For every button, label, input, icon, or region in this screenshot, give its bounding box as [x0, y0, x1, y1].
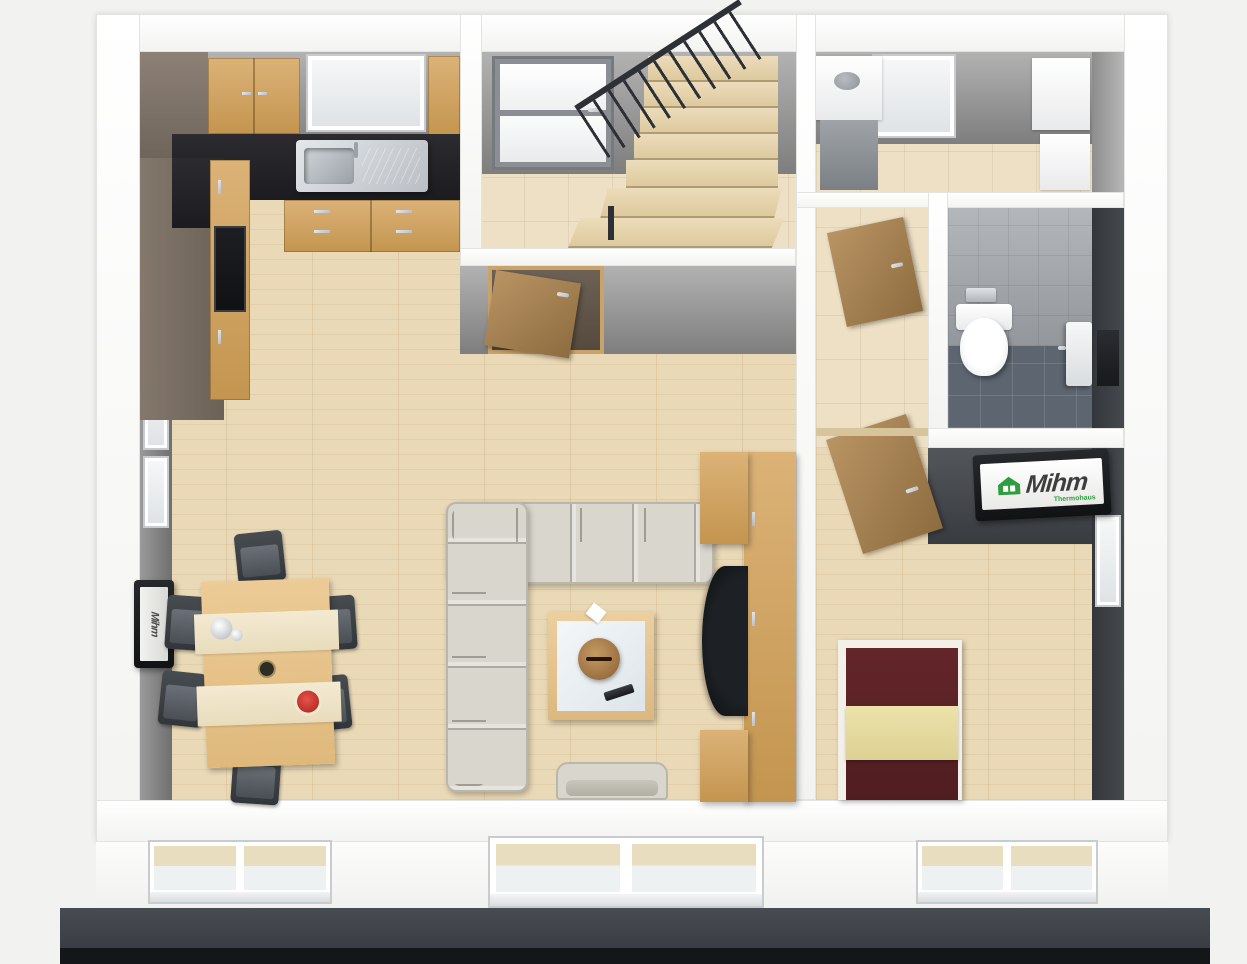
left-window-2	[143, 456, 169, 528]
tv-lowboard	[744, 452, 796, 802]
utility-window	[872, 54, 956, 138]
bedroom-window-sill	[918, 892, 1096, 902]
bed-blanket	[846, 706, 958, 760]
dining-window-sill	[150, 892, 330, 902]
wc-window-dark	[1097, 330, 1119, 386]
kitchen-upper-cabinets	[208, 58, 300, 134]
tv-screen	[702, 566, 748, 716]
living-hall-doorway	[488, 266, 604, 354]
bedroom-side-window	[1095, 515, 1121, 607]
bedroom-door-lintel	[816, 428, 928, 436]
kitchen-upper-cabinet-right	[428, 56, 460, 136]
washbasin-tap	[1058, 346, 1066, 350]
armchair	[556, 762, 668, 800]
flush-plate	[966, 288, 996, 302]
bed-cover	[846, 648, 958, 800]
mihm-house-icon	[996, 474, 1023, 497]
terrace-door-sill	[490, 894, 762, 906]
ground-left	[0, 0, 96, 964]
bedroom-logo-screen: Mihm Thermohaus	[972, 448, 1111, 521]
logo-face: Mihm Thermohaus	[980, 458, 1104, 510]
kitchen-sink	[296, 140, 428, 192]
table-runner-2	[196, 681, 341, 726]
terrace-door	[488, 836, 764, 908]
boiler-body	[820, 120, 878, 190]
logo-subtitle: Thermohaus	[1054, 494, 1096, 503]
door-handle	[557, 292, 569, 298]
boiler	[816, 56, 882, 120]
bedroom-window	[916, 840, 1098, 904]
kitchen-window	[306, 54, 426, 132]
coffee-table	[548, 612, 654, 720]
sofa-back-cushions-left	[452, 540, 486, 786]
bedroom-door-handle	[905, 486, 919, 494]
ground-top	[0, 0, 1247, 14]
toilet-bowl	[960, 318, 1008, 376]
tv-cabinet-upper	[700, 452, 748, 544]
foundation-plinth	[60, 908, 1210, 948]
wall-spine	[796, 14, 816, 800]
sink-basin	[304, 148, 354, 184]
sink-faucet	[354, 142, 358, 158]
stair-newel-post	[608, 206, 614, 240]
wall-utility-south	[796, 192, 1124, 208]
wall-tv-screen: Mihm	[140, 587, 168, 661]
boiler-cap	[834, 72, 860, 90]
wall-corridor-wc	[928, 192, 948, 444]
kitchen-base-cabinets	[284, 200, 460, 252]
sofa-back-cushions-top	[452, 508, 708, 542]
wall-kitchen-hall	[460, 14, 482, 260]
utility-cabinet-lower	[1040, 134, 1090, 190]
sink-drainer	[362, 148, 420, 184]
exterior-wall-top	[96, 14, 1168, 52]
tv-cabinet-lower	[700, 730, 748, 802]
dining-chair-top	[234, 530, 287, 585]
washbasin	[1066, 322, 1092, 386]
ground-right	[1168, 0, 1247, 964]
kitchen-tall-cabinet-fronts	[210, 160, 250, 400]
wall-hall-living-top	[460, 248, 796, 266]
exterior-wall-left	[96, 14, 140, 842]
dining-window	[148, 840, 332, 904]
built-in-oven	[214, 226, 246, 312]
wall-tv-logo-text: Mihm	[148, 611, 160, 637]
utility-cabinet-upper	[1032, 58, 1090, 130]
wall-wc-bedroom-top	[928, 428, 1124, 448]
living-hall-door	[484, 270, 581, 359]
exterior-wall-right	[1124, 14, 1168, 842]
flower-vase	[260, 662, 274, 676]
base-strip	[60, 948, 1210, 964]
wooden-bowl	[578, 638, 620, 680]
wc-door-handle	[891, 262, 904, 268]
floorplan-render: Mihm	[0, 0, 1247, 964]
dining-table	[201, 578, 335, 768]
wc-right-dark-wall	[1092, 196, 1124, 448]
